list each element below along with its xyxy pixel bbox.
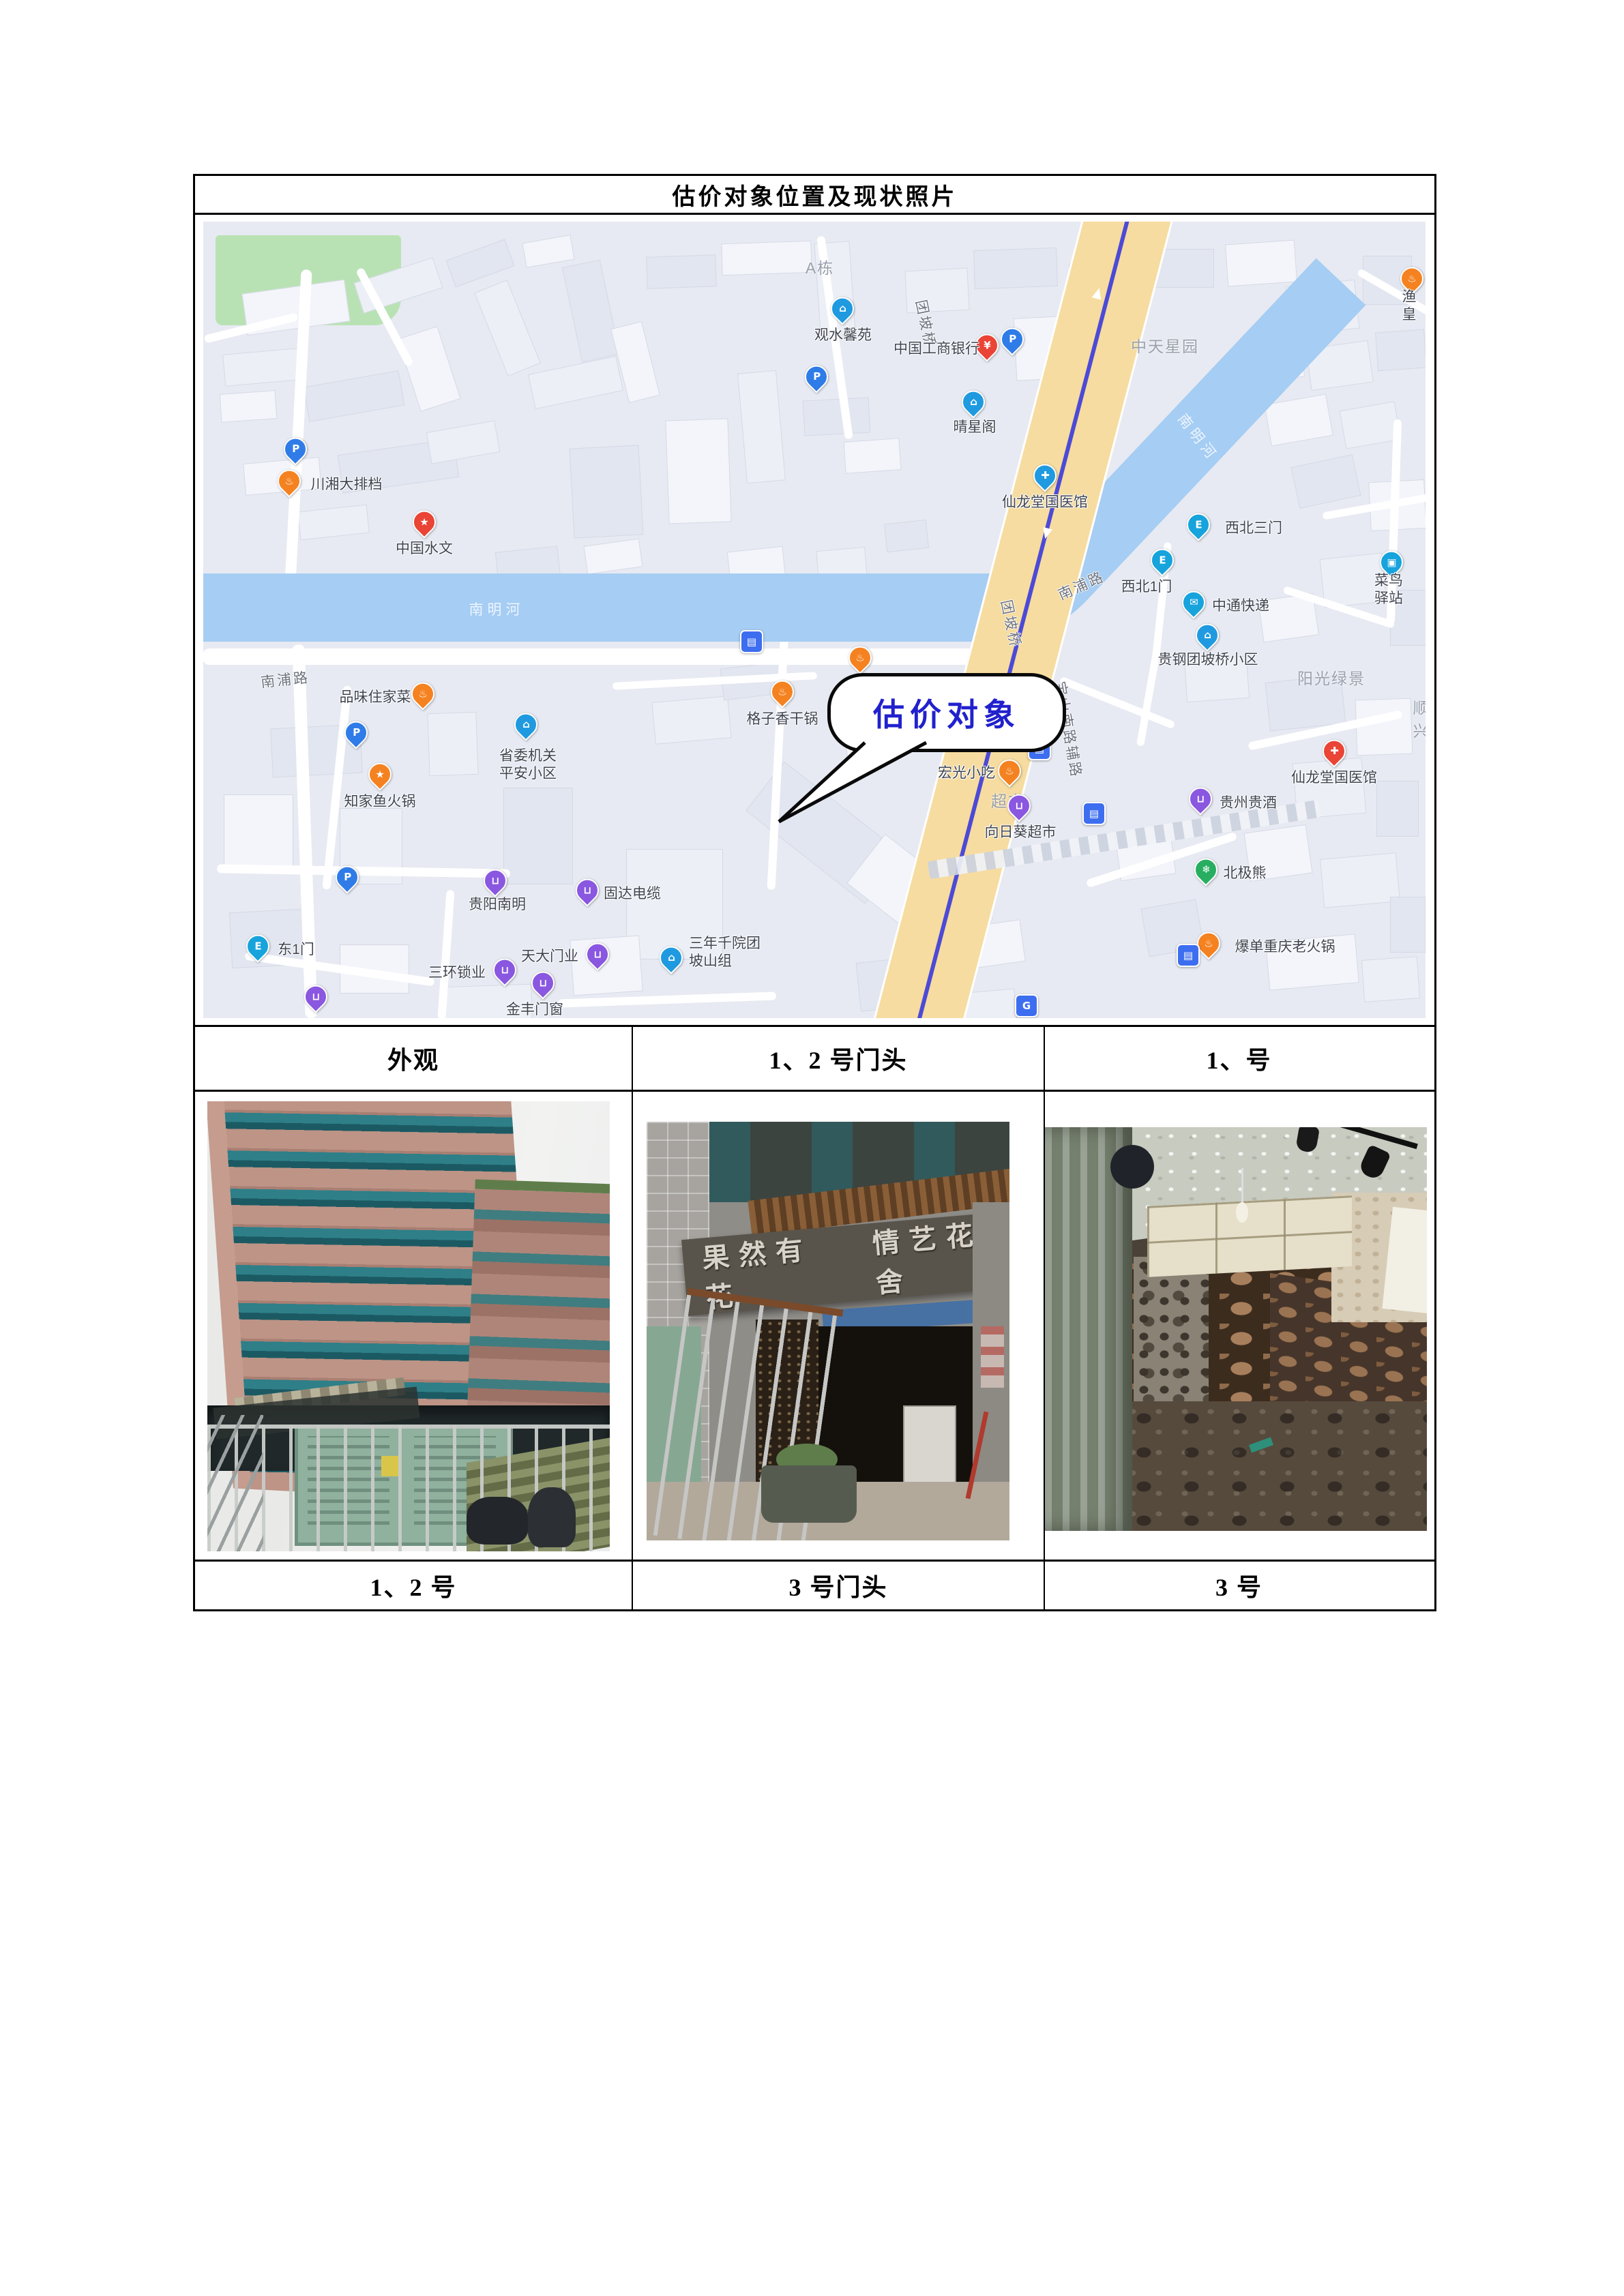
- hanging-bulb: [1241, 1168, 1243, 1204]
- station-pin-cainiao-glyph: ▣: [1387, 557, 1396, 567]
- map-poi-label: 知家鱼火锅: [344, 793, 416, 811]
- document-page: 估价对象位置及现状照片: [0, 0, 1624, 2296]
- map-poi-label: 渔皇: [1401, 288, 1417, 325]
- map-poi-label: 中通快递: [1212, 597, 1269, 615]
- map-poi-label: 金丰门窗: [506, 1001, 563, 1018]
- restaurant-pin-yuhuang-glyph: ♨: [1407, 273, 1416, 284]
- caption-no-1: 1、号: [1045, 1027, 1433, 1090]
- map-poi-label: 品味住家菜: [340, 689, 411, 706]
- map-poi-label: 三年千院团 坡山组: [689, 935, 761, 971]
- bus-stop-icon-glyph: ▤: [1089, 809, 1099, 819]
- shop-pin-tianda-glyph: ⊔: [593, 949, 602, 959]
- residence-pin-qingxingge-glyph: ⌂: [970, 397, 977, 407]
- map-poi-label: 仙龙堂国医馆: [1002, 494, 1088, 511]
- clinic-pin-xianlongtang-east-glyph: ✚: [1330, 746, 1339, 756]
- map-poi-label: 北极熊: [1224, 865, 1267, 882]
- shop-pin-xiangrikui-glyph: ⊔: [1015, 801, 1023, 811]
- gas-station-icon: G: [1015, 994, 1038, 1017]
- photo-footer-row: 1、2 号 3 号门头 3 号: [195, 1562, 1434, 1609]
- wall-shelving: [1147, 1195, 1352, 1277]
- restaurant-pin-baodan-glyph: ♨: [1204, 938, 1213, 949]
- caption-no-3: 3 号: [1045, 1562, 1433, 1609]
- bus-stop-icon-glyph: ▤: [1183, 951, 1193, 961]
- map-poi-label: 向日葵超市: [985, 824, 1057, 841]
- map-poi-label: 三环锁业: [428, 964, 486, 982]
- caption-door-1-2: 1、2 号门头: [633, 1027, 1045, 1090]
- gate-pin-northwest3-glyph: E: [1195, 520, 1202, 530]
- shop-pin-beijixiong-glyph: ❄: [1202, 865, 1211, 875]
- gas-station-icon-glyph: G: [1022, 1001, 1031, 1011]
- map-poi-label: 观水馨苑: [814, 327, 872, 344]
- restaurant-pin-chuanxiang-glyph: ♨: [284, 476, 293, 486]
- map-poi-label: 天大门业: [521, 948, 578, 966]
- bank-pin-icbc-glyph: ¥: [984, 340, 990, 351]
- parking-pin-glyph: P: [353, 728, 360, 738]
- residence-pin-guanshui-glyph: ⌂: [839, 303, 846, 314]
- restaurant-pin-zhijiayu-glyph: ★: [375, 769, 384, 779]
- parking-pin-glyph: P: [813, 372, 821, 382]
- shop-pin-jinfeng-glyph: ⊔: [539, 978, 547, 988]
- map-poi-label: 贵阳南明: [469, 896, 526, 914]
- map-poi-label: 宏光小吃: [938, 764, 995, 782]
- gate-pin-east1-glyph: E: [254, 941, 261, 951]
- motorbike: [528, 1487, 576, 1547]
- express-pin-zhongtong-glyph: ✉: [1190, 597, 1198, 608]
- shop-pin-sanhuan-glyph: ⊔: [501, 965, 509, 975]
- map-poi-label: 贵钢团坡桥小区: [1158, 651, 1258, 669]
- gate-pin-northwest1-glyph: E: [1159, 555, 1166, 565]
- landmark-pin-hydrology-glyph: ★: [419, 517, 428, 527]
- caption-exterior: 外观: [195, 1027, 633, 1090]
- parking-pin-glyph: P: [1009, 334, 1016, 344]
- map-poi-label: 西北三门: [1225, 520, 1282, 537]
- photo-row: 果然有花 情艺花舍: [195, 1092, 1434, 1562]
- map-poi-label: 中国水文: [396, 540, 453, 558]
- caption-door-3: 3 号门头: [633, 1562, 1045, 1609]
- photo-interior: [1045, 1127, 1427, 1531]
- title-row: 估价对象位置及现状照片: [195, 176, 1434, 215]
- page-title: 估价对象位置及现状照片: [195, 176, 1434, 213]
- map-poi-label: 川湘大排档: [311, 476, 383, 494]
- map-poi-label: 爆单重庆老火锅: [1235, 938, 1335, 956]
- posters: [981, 1326, 1004, 1388]
- stair-railing: [207, 1415, 263, 1551]
- map-cell: 估价对象 A栋中天星园阳光绿景顺兴超市南浦路南浦路团坡桥团坡桥宝山南路辅路南明河…: [195, 215, 1434, 1025]
- map-poi-label: 省委机关 平安小区: [499, 747, 557, 784]
- caption-no-1-2: 1、2 号: [195, 1562, 633, 1609]
- photo-header-row: 外观 1、2 号门头 1、号: [195, 1027, 1434, 1092]
- ceiling-fan: [1110, 1145, 1154, 1189]
- map-poi-label: 晴星阁: [954, 419, 996, 436]
- restaurant-pin-gezi-glyph: ♨: [778, 687, 786, 697]
- parking-pin-glyph: P: [344, 872, 351, 882]
- dirty-floor: [1120, 1401, 1427, 1531]
- map-area-label: 顺兴: [1413, 695, 1426, 741]
- callout-tail: [763, 737, 940, 833]
- residence-pin-guigang-glyph: ⌂: [1204, 630, 1211, 640]
- map-poi-label: 菜鸟驿站: [1370, 572, 1407, 608]
- photo-cell-exterior: [195, 1092, 633, 1560]
- shop-pin-guiyangnanming-glyph: ⊔: [491, 876, 499, 886]
- white-cabinet: [903, 1405, 956, 1485]
- bus-stop-icon: ▤: [1177, 944, 1200, 967]
- shop-pin-guizhouguijiu-glyph: ⊔: [1196, 794, 1205, 804]
- map-poi-label: 中国工商银行: [894, 340, 979, 358]
- parking-pin-glyph: P: [292, 444, 299, 454]
- clinic-pin-xianlongtang-west-glyph: ✚: [1041, 471, 1050, 481]
- map-poi-label: 固达电缆: [604, 885, 661, 903]
- shop-pin-glyph: ⊔: [312, 992, 320, 1002]
- map-poi-label: 贵州贵酒: [1220, 794, 1277, 812]
- shop-pin-gudadianlan-glyph: ⊔: [583, 885, 591, 895]
- photo-building-exterior: [207, 1101, 610, 1551]
- restaurant-pin-pinwei-glyph: ♨: [418, 689, 427, 699]
- motorbike: [467, 1497, 528, 1545]
- appraisal-photo-table: 估价对象位置及现状照片: [193, 174, 1436, 1611]
- restaurant-pin-glyph: ♨: [855, 653, 864, 663]
- photo-storefront: 果然有花 情艺花舍: [647, 1122, 1009, 1540]
- restaurant-pin-hongguang-glyph: ♨: [1005, 766, 1014, 776]
- residence-pin-shengwei-glyph: ⌂: [522, 719, 530, 730]
- bus-stop-icon: ▤: [1082, 802, 1106, 825]
- map-poi-label: 东1门: [278, 941, 314, 959]
- map-area-label: 中天星园: [1131, 333, 1199, 357]
- residence-pin-sannian-glyph: ⌂: [668, 953, 675, 963]
- location-map: 估价对象 A栋中天星园阳光绿景顺兴超市南浦路南浦路团坡桥团坡桥宝山南路辅路南明河…: [203, 222, 1426, 1018]
- map-poi-label: 西北1门: [1121, 578, 1172, 596]
- map-poi-label: 格子香干锅: [747, 711, 818, 728]
- photo-cell-storefront: 果然有花 情艺花舍: [633, 1092, 1045, 1560]
- map-poi-label: 仙龙堂国医馆: [1291, 769, 1377, 787]
- bus-stop-icon-glyph: ▤: [747, 637, 756, 647]
- planter-pot: [761, 1465, 857, 1523]
- roller-shutter: [1045, 1127, 1132, 1531]
- river-label: 南明河: [469, 599, 525, 619]
- map-row: 估价对象 A栋中天星园阳光绿景顺兴超市南浦路南浦路团坡桥团坡桥宝山南路辅路南明河…: [195, 215, 1434, 1027]
- bus-stop-icon: ▤: [740, 630, 763, 653]
- subject-callout-label: 估价对象: [873, 690, 1020, 735]
- photo-cell-interior: [1045, 1092, 1433, 1560]
- map-area-label: A栋: [806, 255, 834, 278]
- map-area-label: 阳光绿景: [1297, 666, 1365, 689]
